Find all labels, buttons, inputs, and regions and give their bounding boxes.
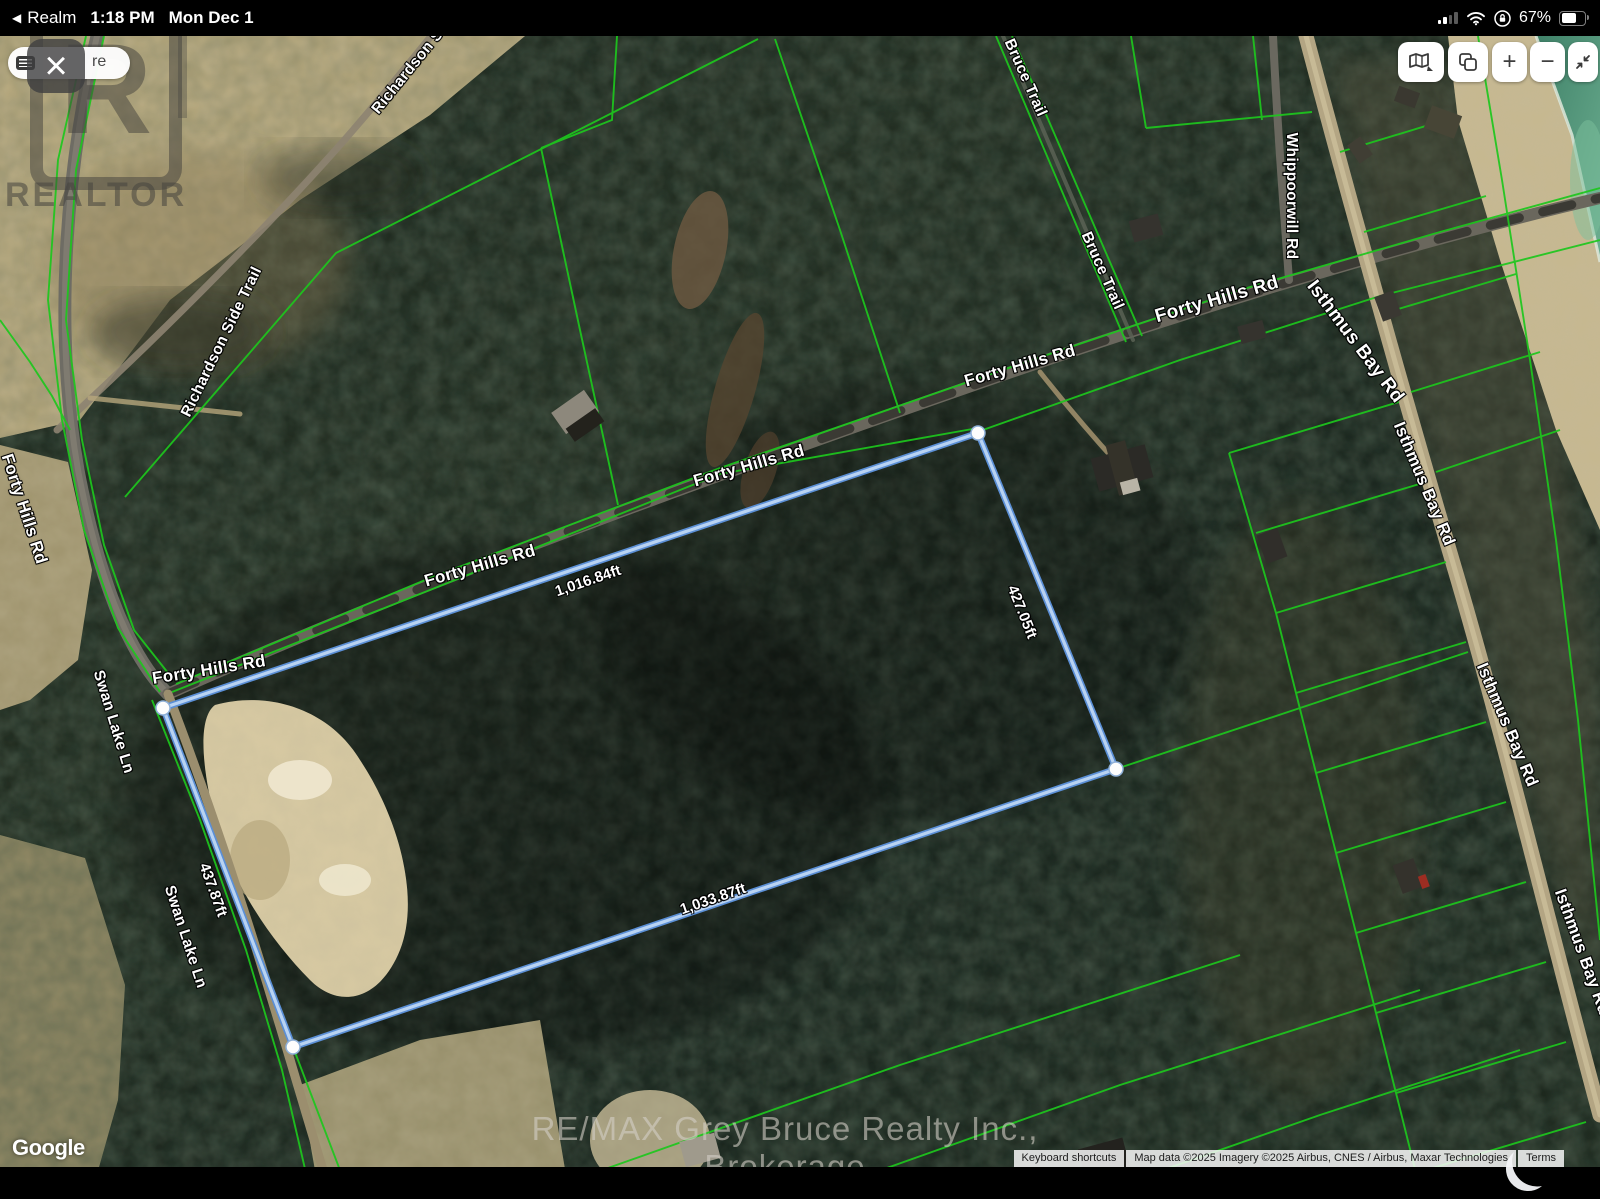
search-input-text: re: [92, 53, 106, 71]
back-app-label: Realm: [27, 8, 76, 28]
copy-squares-icon: [1458, 52, 1478, 72]
rotation-lock-icon: [1494, 10, 1511, 27]
status-time: 1:18 PM: [90, 8, 154, 28]
cellular-signal-icon: [1438, 12, 1458, 24]
back-to-app-button[interactable]: ◀ Realm: [12, 8, 76, 28]
screen: Richardson S Richardson Side Trail Bruce…: [0, 0, 1600, 1199]
bottom-bar: [0, 1167, 1600, 1199]
zoom-in-button[interactable]: +: [1492, 42, 1527, 82]
google-logo[interactable]: Google: [12, 1135, 85, 1161]
battery-icon: [1559, 11, 1586, 26]
keyboard-shortcuts-button[interactable]: Keyboard shortcuts: [1014, 1150, 1125, 1167]
collapse-button[interactable]: [1568, 42, 1598, 82]
map-attribution: Keyboard shortcuts Map data ©2025 Imager…: [1014, 1150, 1564, 1167]
pointer-crescent: [1504, 1144, 1552, 1196]
arrows-inward-icon: [1574, 53, 1592, 71]
close-button[interactable]: ×: [27, 39, 85, 93]
vertex-handle-east[interactable]: [1109, 762, 1123, 776]
map-type-button[interactable]: [1398, 42, 1444, 82]
vertex-handle-south[interactable]: [286, 1040, 300, 1054]
layers-button[interactable]: [1448, 42, 1488, 82]
map-canvas[interactable]: [0, 0, 1600, 1199]
chevron-left-icon: ◀: [12, 12, 21, 24]
vertex-handle-west[interactable]: [156, 701, 170, 715]
status-date: Mon Dec 1: [169, 8, 254, 28]
vertex-handle-north[interactable]: [971, 426, 985, 440]
folded-map-icon: [1408, 52, 1434, 72]
map-data-credit: Map data ©2025 Imagery ©2025 Airbus, CNE…: [1126, 1150, 1516, 1167]
wifi-icon: [1466, 11, 1486, 26]
road-label-whippoorwill-rd: Whippoorwill Rd: [1282, 133, 1300, 260]
battery-percent: 67%: [1519, 9, 1551, 27]
zoom-out-button[interactable]: −: [1530, 42, 1565, 82]
status-bar: ◀ Realm 1:18 PM Mon Dec 1 67%: [0, 0, 1600, 36]
